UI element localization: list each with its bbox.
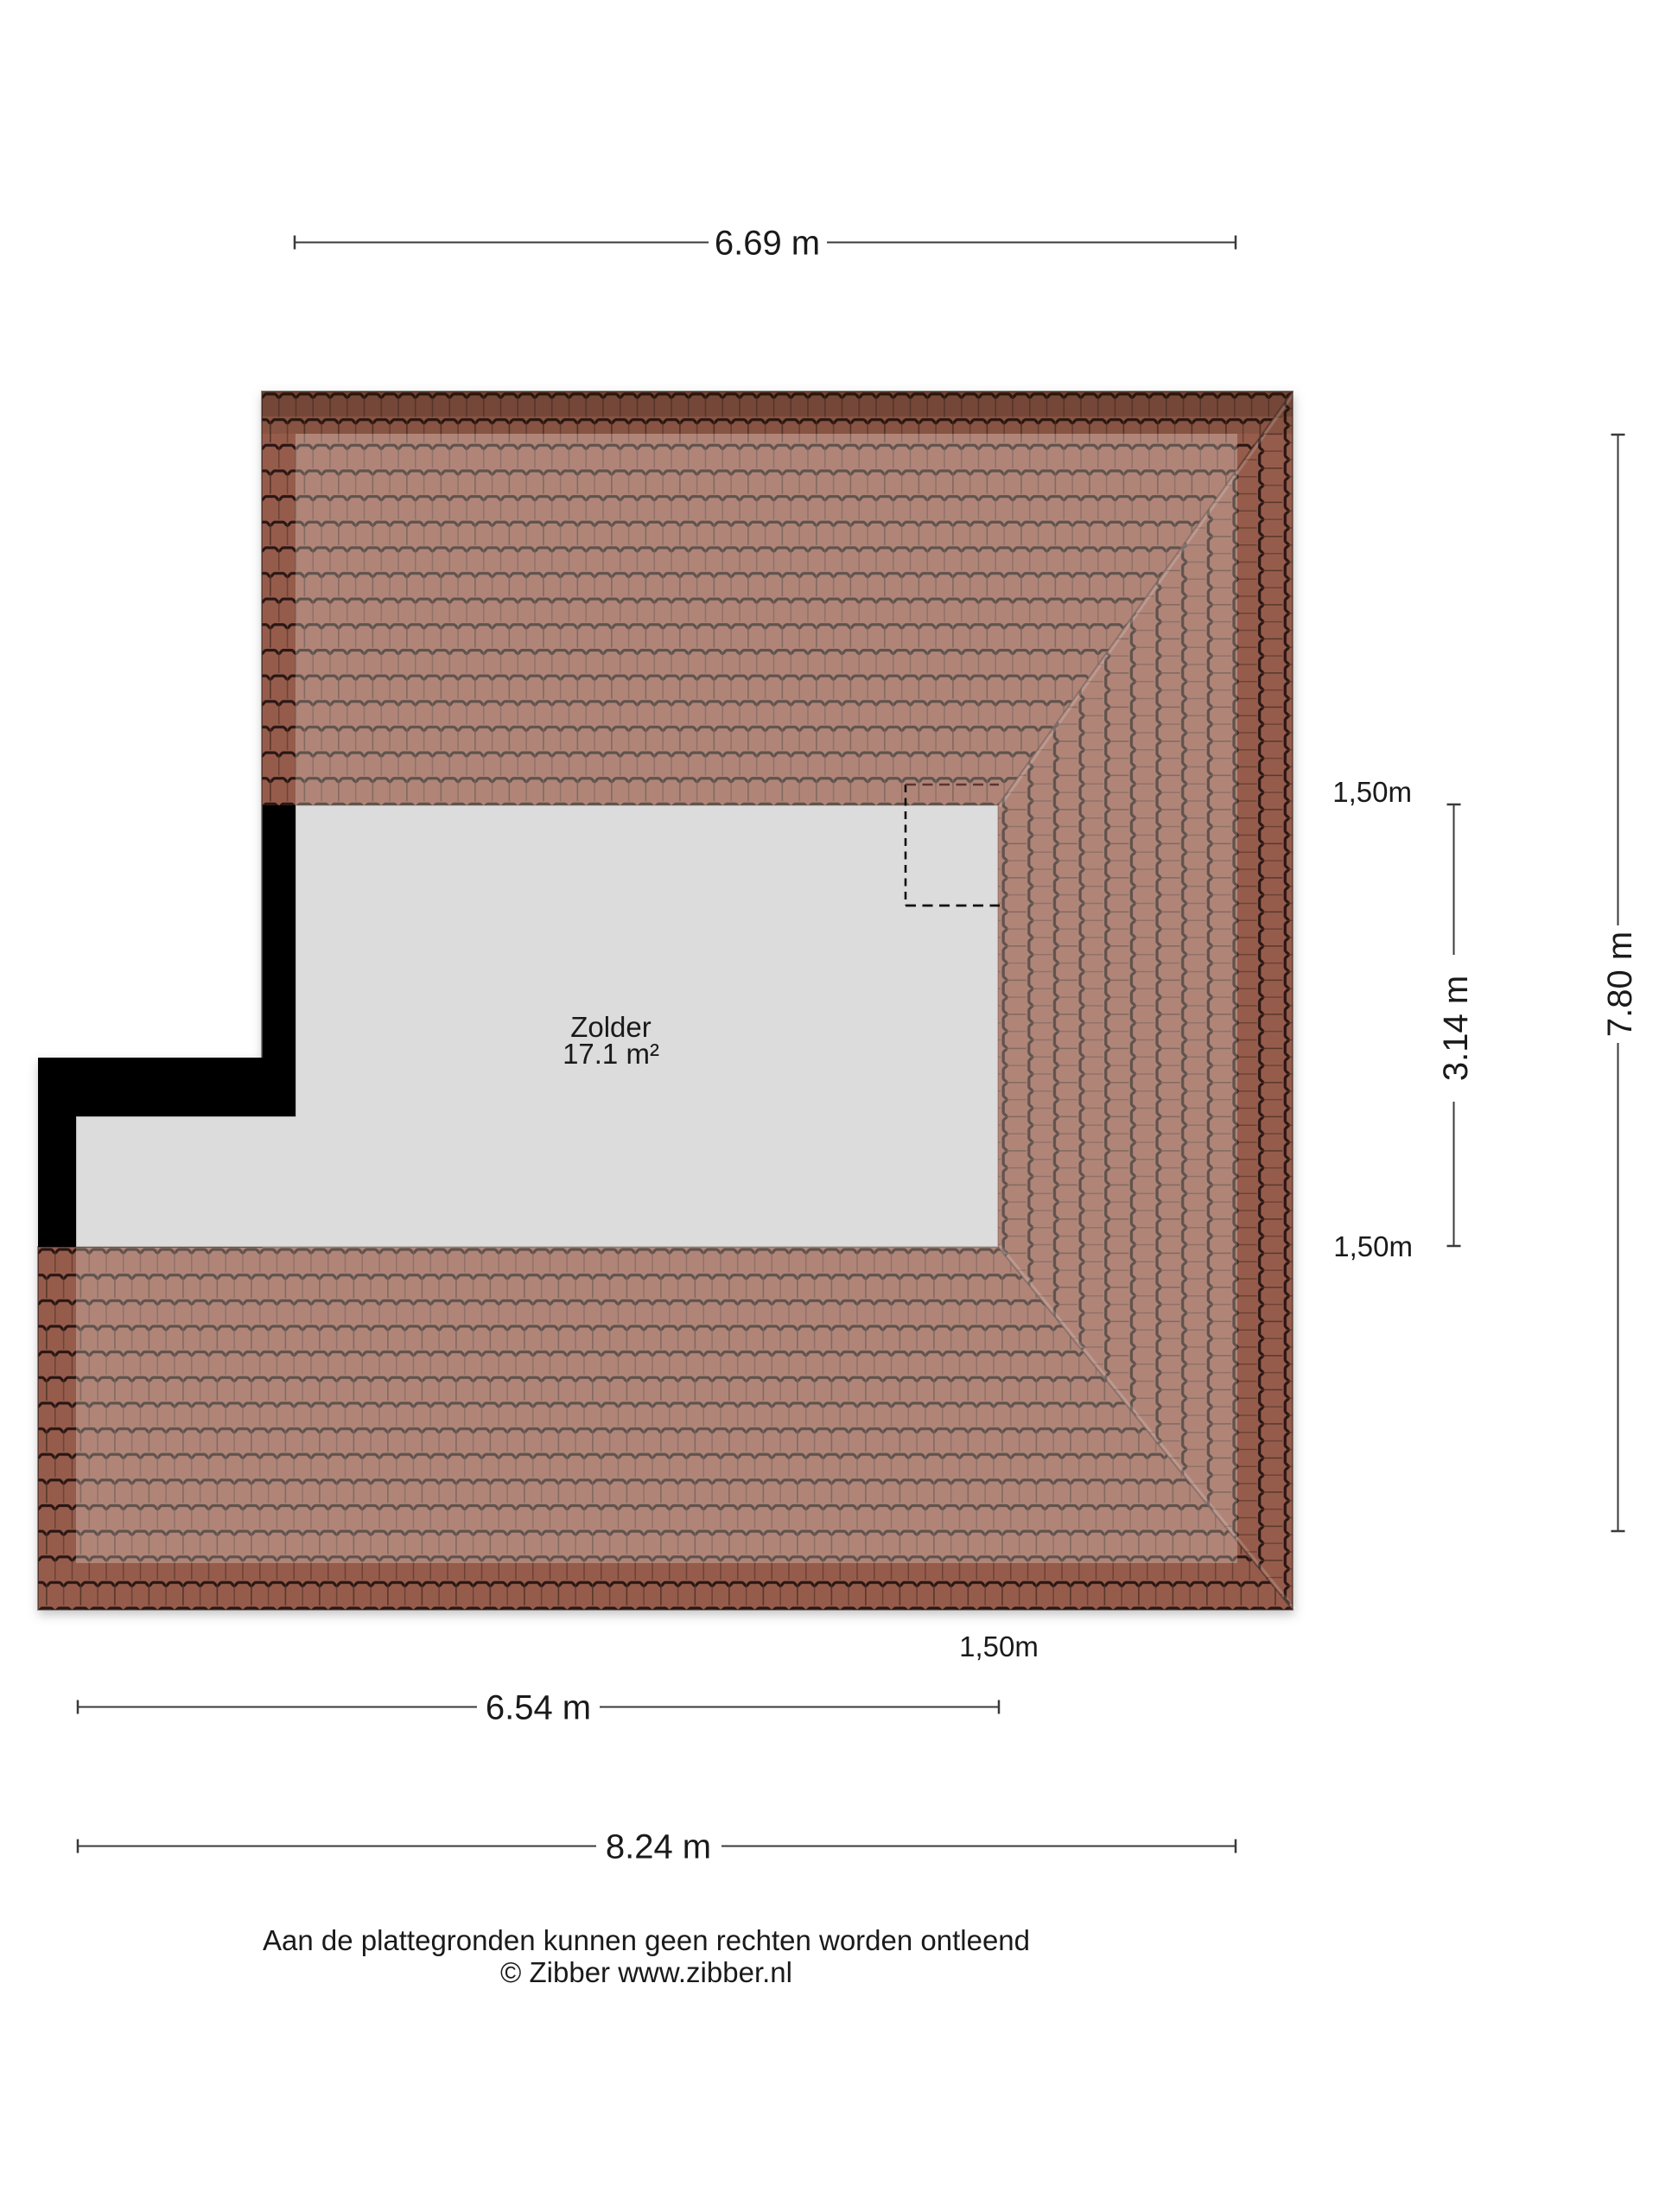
svg-text:17.1 m²: 17.1 m²	[563, 1038, 659, 1070]
svg-text:1,50m: 1,50m	[1332, 776, 1412, 808]
svg-text:6.69 m: 6.69 m	[715, 225, 820, 263]
svg-text:8.24 m: 8.24 m	[606, 1828, 711, 1866]
svg-text:Aan de plattegronden kunnen ge: Aan de plattegronden kunnen geen rechten…	[263, 1924, 1030, 1956]
svg-text:1,50m: 1,50m	[959, 1630, 1039, 1662]
svg-text:© Zibber www.zibber.nl: © Zibber www.zibber.nl	[500, 1956, 792, 1988]
svg-text:1,50m: 1,50m	[1333, 1230, 1413, 1262]
svg-text:6.54 m: 6.54 m	[486, 1689, 591, 1727]
svg-text:3.14 m: 3.14 m	[1437, 976, 1475, 1081]
svg-text:7.80 m: 7.80 m	[1601, 931, 1639, 1037]
